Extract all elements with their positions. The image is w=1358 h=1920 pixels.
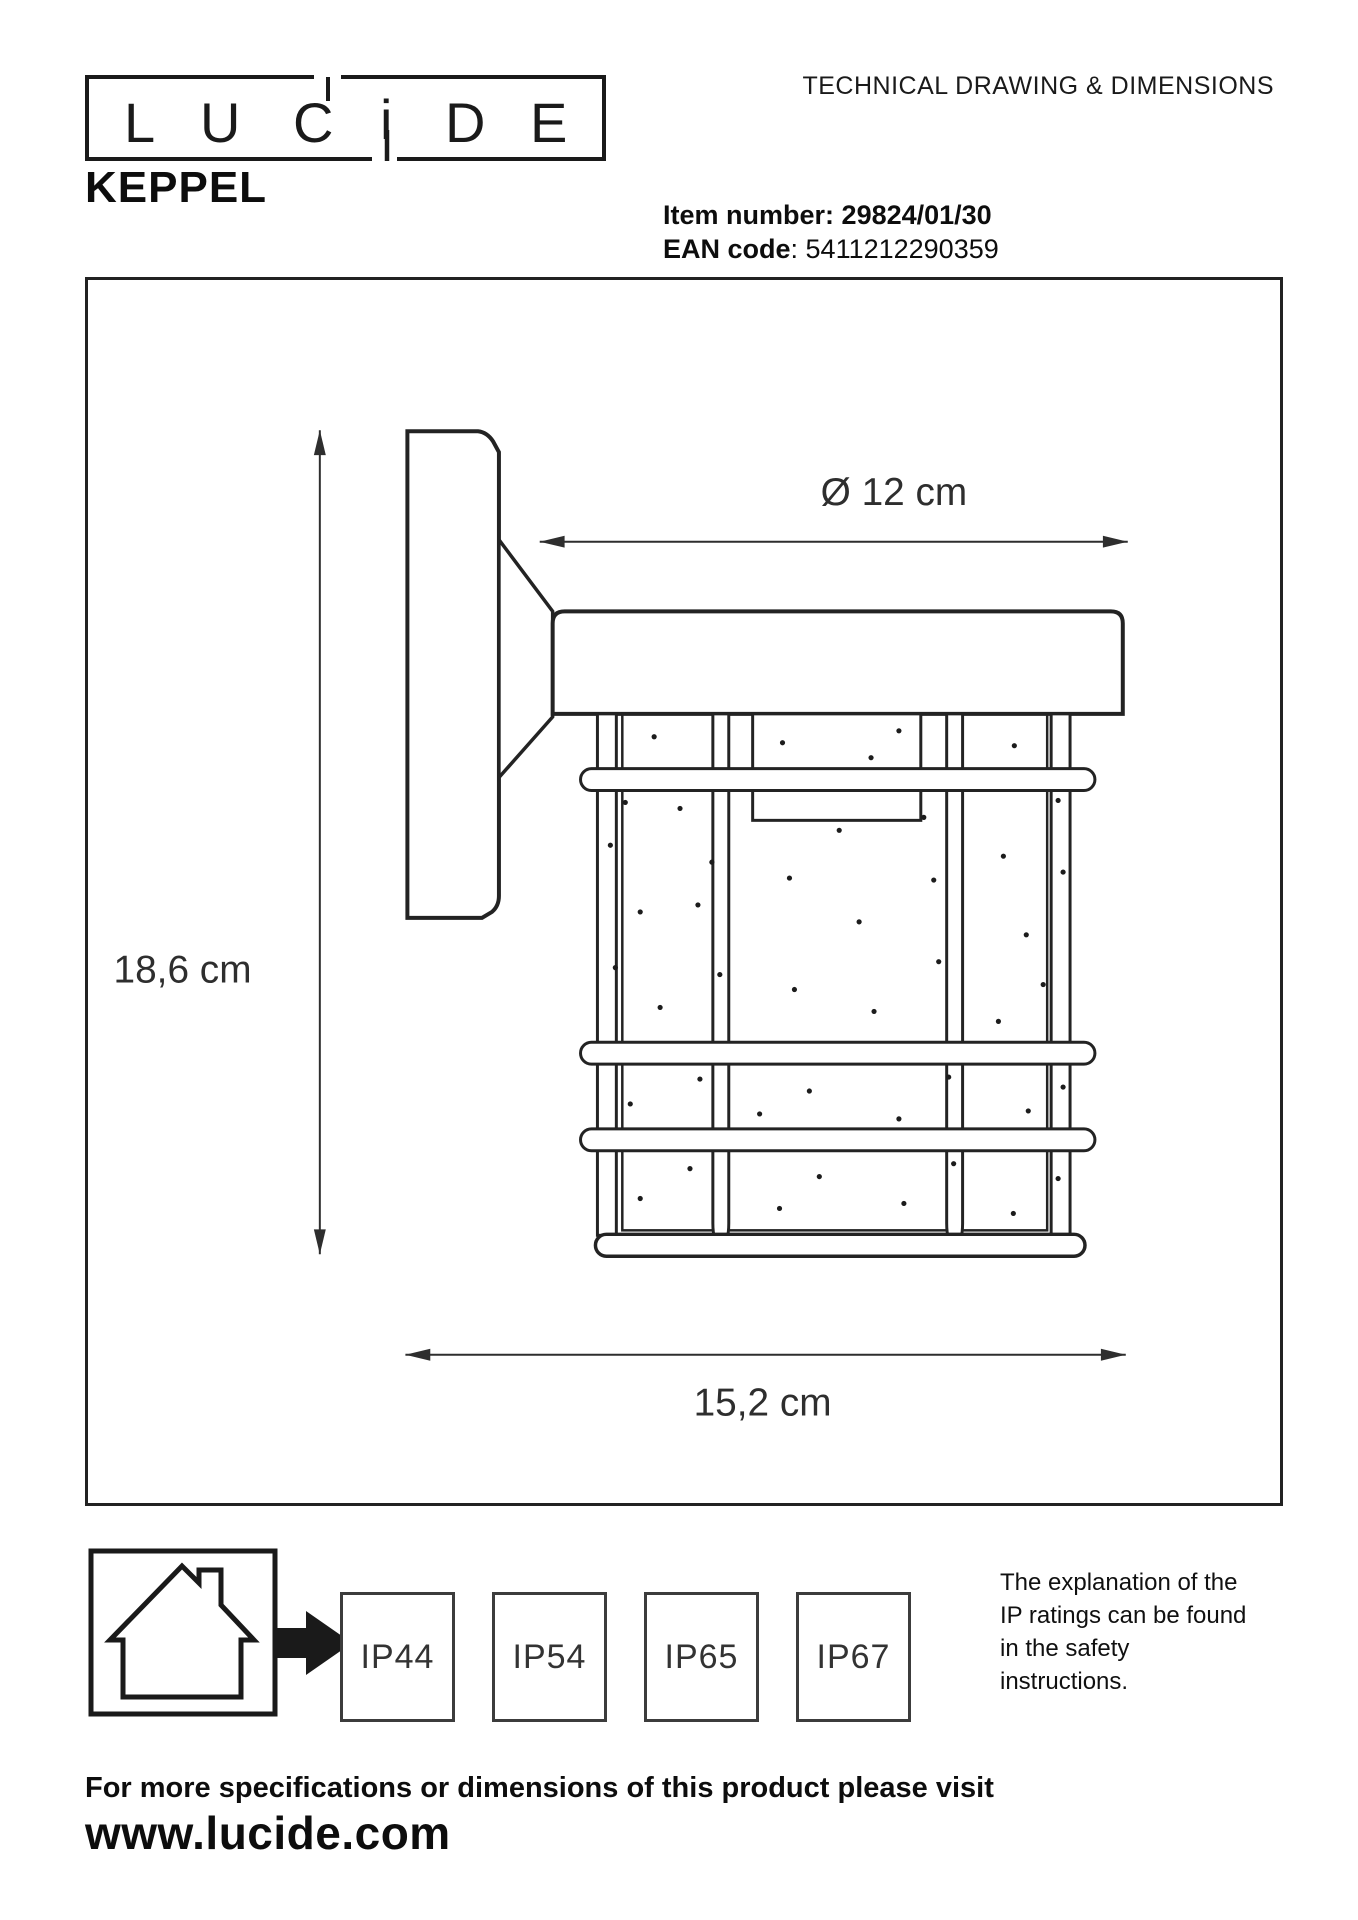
speckle-dot — [1011, 1211, 1016, 1216]
website-link[interactable]: www.lucide.com — [85, 1806, 451, 1860]
diameter-label: Ø 12 cm — [821, 471, 968, 514]
speckle-dot — [608, 843, 613, 848]
cage-ring-top — [581, 769, 1095, 791]
speckle-dot — [638, 909, 643, 914]
more-specs-text: For more specifications or dimensions of… — [85, 1772, 994, 1805]
lamp-base — [595, 1234, 1085, 1256]
speckle-dot — [817, 1174, 822, 1179]
item-number-value: 29824/01/30 — [842, 200, 992, 230]
ip-rating-badge-ip65: IP65 — [644, 1592, 759, 1722]
logo-letter: i — [380, 88, 392, 151]
speckle-dot — [931, 877, 936, 882]
ip-ratings-note: The explanation of the IP ratings can be… — [1000, 1566, 1246, 1698]
speckle-dot — [857, 919, 862, 924]
speckle-dot — [1041, 982, 1046, 987]
speckle-dot — [717, 972, 722, 977]
note-line: The explanation of the — [1000, 1566, 1246, 1599]
cage-ring-lower — [581, 1129, 1095, 1151]
speckle-dot — [896, 728, 901, 733]
speckle-dot — [807, 1088, 812, 1093]
height-label: 18,6 cm — [114, 949, 252, 992]
ip-rating-badge-ip44: IP44 — [340, 1592, 455, 1722]
speckle-dot — [792, 987, 797, 992]
arrow-shaft — [273, 1628, 306, 1658]
speckle-dot — [638, 1196, 643, 1201]
logo-letter: U — [200, 91, 240, 154]
item-number-label: Item number: — [663, 200, 834, 230]
speckle-dot — [697, 1076, 702, 1081]
speckle-dot — [951, 1161, 956, 1166]
arrowhead-right-icon — [1101, 1349, 1126, 1361]
speckle-dot — [757, 1111, 762, 1116]
speckle-dot — [901, 1201, 906, 1206]
speckle-dot — [777, 1206, 782, 1211]
left-post — [597, 714, 616, 1235]
logo-letter: E — [530, 91, 567, 154]
ean-value: : 5411212290359 — [791, 234, 999, 264]
logo-letter: C — [293, 91, 333, 154]
speckle-dot — [695, 902, 700, 907]
speckle-dot — [1001, 854, 1006, 859]
logo-letter: L — [124, 91, 155, 154]
speckle-dot — [1061, 870, 1066, 875]
speckle-dot — [780, 740, 785, 745]
speckle-dot — [658, 1005, 663, 1010]
speckle-dot — [936, 959, 941, 964]
lucide-logo: L U C i D E — [0, 0, 640, 175]
speckle-dot — [946, 1075, 951, 1080]
speckle-dot — [613, 965, 618, 970]
arrowhead-left-icon — [405, 1349, 430, 1361]
product-name: KEPPEL — [85, 163, 267, 213]
speckle-dot — [1012, 743, 1017, 748]
speckle-dot — [687, 1166, 692, 1171]
logo-letter: D — [445, 91, 485, 154]
arrowhead-right-icon — [1103, 536, 1128, 548]
indoor-outdoor-pictogram — [88, 1548, 358, 1720]
speckle-dot — [787, 875, 792, 880]
page-title: TECHNICAL DRAWING & DIMENSIONS — [802, 72, 1274, 101]
arrowhead-down-icon — [314, 1229, 326, 1254]
speckle-dot — [837, 828, 842, 833]
speckle-dot — [623, 800, 628, 805]
speckle-dot — [921, 815, 926, 820]
speckle-dot — [1056, 798, 1061, 803]
technical-drawing-frame: Ø 12 cm 18,6 cm 15,2 cm — [85, 277, 1283, 1506]
speckle-dot — [1056, 1176, 1061, 1181]
product-codes: Item number: 29824/01/30 EAN code: 54112… — [663, 198, 999, 266]
speckle-dot — [896, 1116, 901, 1121]
item-number-row: Item number: 29824/01/30 — [663, 198, 999, 232]
speckle-dot — [996, 1019, 1001, 1024]
wall-lamp-drawing: Ø 12 cm 18,6 cm 15,2 cm — [88, 280, 1280, 1503]
speckle-dot — [709, 860, 714, 865]
cage-vertical-bar-left — [713, 714, 729, 1243]
speckle-dot — [1026, 1108, 1031, 1113]
right-post — [1051, 714, 1070, 1235]
note-line: in the safety — [1000, 1632, 1246, 1665]
logo-bottom-gap — [372, 153, 397, 165]
ean-label: EAN code — [663, 234, 791, 264]
speckle-dot — [628, 1101, 633, 1106]
arrowhead-left-icon — [540, 536, 565, 548]
speckle-dot — [868, 755, 873, 760]
logo-box — [87, 77, 604, 159]
ip-rating-badge-ip54: IP54 — [492, 1592, 607, 1722]
ip-rating-label: IP54 — [513, 1638, 587, 1677]
depth-label: 15,2 cm — [694, 1381, 832, 1424]
wall-plate — [407, 431, 499, 918]
lamp-canopy — [553, 611, 1123, 713]
ip-rating-badge-ip67: IP67 — [796, 1592, 911, 1722]
house-icon — [110, 1566, 254, 1697]
ean-row: EAN code: 5411212290359 — [663, 232, 999, 266]
speckle-dot — [677, 806, 682, 811]
speckle-dot — [871, 1009, 876, 1014]
ip-rating-label: IP67 — [817, 1638, 891, 1677]
speckle-dot — [1061, 1084, 1066, 1089]
cage-ring-middle — [581, 1042, 1095, 1064]
arrowhead-up-icon — [314, 430, 326, 455]
ip-rating-label: IP65 — [665, 1638, 739, 1677]
mounting-bracket — [499, 540, 553, 778]
speckle-dot — [1024, 932, 1029, 937]
speckle-dot — [652, 734, 657, 739]
note-line: IP ratings can be found — [1000, 1599, 1246, 1632]
ip-rating-label: IP44 — [361, 1638, 435, 1677]
note-line: instructions. — [1000, 1665, 1246, 1698]
